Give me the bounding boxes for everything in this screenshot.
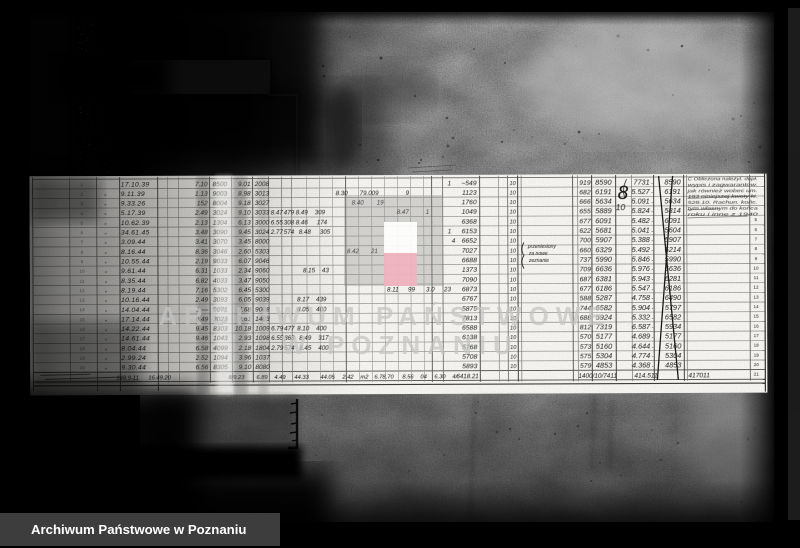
svg-text:ARCHIWUM PAŃSTWOWE: ARCHIWUM PAŃSTWOWE: [158, 301, 611, 331]
svg-text:Archiwum Państwowe w Poznaniu: Archiwum Państwowe w Poznaniu: [31, 522, 246, 537]
svg-text:W POZNANIU: W POZNANIU: [281, 330, 519, 360]
